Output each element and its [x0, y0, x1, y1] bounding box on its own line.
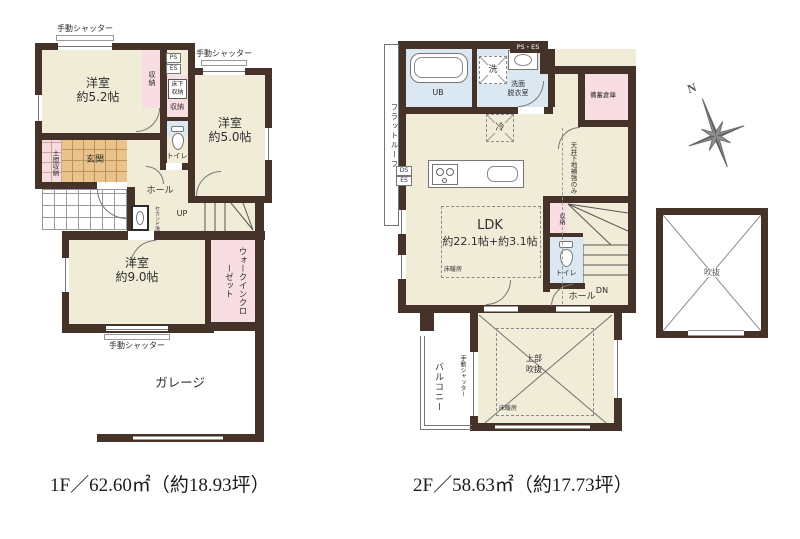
- sink-icon: [487, 166, 518, 182]
- burner: [446, 168, 454, 176]
- opening: [484, 306, 518, 312]
- door-opening: [518, 107, 544, 114]
- wall: [35, 182, 97, 189]
- wall: [205, 240, 211, 322]
- flat-roof-label: フラットルーフ: [386, 52, 398, 220]
- window: [265, 128, 272, 160]
- room-90-size: 約9.0帖: [100, 271, 174, 285]
- up-label: UP: [172, 209, 192, 218]
- bathtub-inner: [414, 57, 463, 78]
- fridge-box: 冷: [486, 114, 514, 142]
- void-label-2: 吹抜: [519, 365, 549, 374]
- ps-box: PS: [166, 53, 181, 63]
- ldk-size: 約22.1帖+約3.1帖: [424, 236, 556, 249]
- basin-icon: [508, 50, 538, 70]
- floor-heating-label: 床暖房: [444, 267, 474, 274]
- garage-gate-opening: [133, 436, 223, 440]
- hall-label-2f: ホール: [560, 292, 604, 302]
- ds-box: DS: [396, 166, 412, 176]
- shutter-box: [201, 60, 247, 66]
- second-basin-icon: [131, 205, 149, 231]
- door-opening: [166, 163, 182, 170]
- opening: [556, 306, 590, 312]
- wall: [543, 196, 628, 203]
- void-label-1: 上部: [519, 354, 549, 363]
- wall: [628, 66, 636, 312]
- ub-label: UB: [426, 88, 450, 97]
- window: [495, 425, 590, 429]
- garage-label: ガレージ: [146, 376, 214, 390]
- window: [58, 43, 112, 50]
- underfloor-storage-box: 床下 収納: [168, 79, 187, 99]
- room-90-name: 洋室: [100, 257, 174, 271]
- caption-2f: 2F／58.63㎡（約17.73坪）: [413, 470, 633, 497]
- bathtub-icon: [410, 53, 468, 83]
- fridge-label: 冷: [487, 123, 513, 133]
- burner: [436, 168, 444, 176]
- toilet-label-2f: トイレ: [549, 269, 583, 277]
- underfloor-label-1: 床下: [169, 82, 186, 89]
- closet-2f-label: 収納: [553, 205, 564, 233]
- doma-label: 土間収納: [46, 144, 58, 182]
- window: [62, 258, 69, 292]
- wall: [166, 117, 188, 121]
- wall: [205, 322, 264, 331]
- toilet-icon: [170, 126, 185, 151]
- room-52-name: 洋室: [66, 77, 130, 91]
- wall: [472, 49, 477, 107]
- balcony-label: バルコニー: [429, 350, 443, 424]
- burner: [442, 178, 447, 183]
- room-50-name: 洋室: [196, 117, 264, 131]
- ceiling-note-label: 天井下地補強のみ: [564, 126, 576, 210]
- ldk-name: LDK: [449, 219, 531, 234]
- hall-label-1f: ホール: [139, 186, 181, 196]
- stove-icon: [432, 164, 458, 185]
- shutter-label: 手動シャッター: [104, 341, 170, 350]
- ps-es-badge: PS・ES: [510, 42, 546, 53]
- toilet-icon: [558, 241, 574, 268]
- wall: [420, 313, 434, 331]
- closet-strip-label: 収納: [146, 62, 156, 96]
- window: [203, 68, 245, 75]
- window: [398, 255, 406, 279]
- basin-bowl: [514, 54, 532, 66]
- toilet-label-1f: トイレ: [162, 152, 192, 160]
- genkan-label: 玄関: [81, 155, 109, 165]
- wic-label: ウォークインクローゼット: [216, 246, 248, 316]
- window: [35, 95, 42, 121]
- senmen-label-2: 脱衣室: [492, 89, 544, 97]
- closet-label: 収納: [164, 103, 190, 111]
- floor-heating-label-2: 床暖房: [499, 406, 529, 413]
- basin-bowl: [136, 211, 144, 225]
- shutter-label: 手動シャッター: [192, 49, 256, 58]
- underfloor-label-2: 収納: [169, 90, 186, 97]
- second-basin-label: セカンド洗面: [150, 204, 159, 238]
- void-square-label: 吹抜: [690, 268, 734, 277]
- stairs-1f: [195, 203, 255, 231]
- shutter-box: [104, 334, 170, 340]
- window: [398, 210, 406, 234]
- shutter-label-2f: 手動シャッター: [455, 344, 465, 408]
- caption-1f: 1F／62.60㎡（約18.93坪）: [50, 470, 270, 497]
- toilet-tank: [171, 126, 184, 132]
- shutter-label: 手動シャッター: [48, 24, 122, 33]
- room-52-size: 約5.2帖: [66, 91, 130, 105]
- wall: [62, 231, 265, 240]
- void-square: 吹抜: [656, 208, 768, 338]
- compass-icon: [676, 84, 752, 180]
- window: [106, 326, 168, 331]
- floorplan-page: { "f1": { "caption": "1F／62.60㎡（約18.93坪）…: [0, 0, 800, 539]
- wall: [35, 133, 160, 140]
- wall: [548, 49, 555, 107]
- shutter-box: [56, 35, 114, 41]
- es-box: ES: [396, 176, 412, 186]
- void-square-opening: [688, 330, 744, 336]
- es-box: ES: [166, 64, 181, 74]
- toilet-bowl: [172, 133, 184, 150]
- floor1-plan: PS ES 床下 収納 手動シャッター 手動シャッター 手動シャッター 洋室 約…: [0, 0, 320, 539]
- wall: [188, 196, 265, 203]
- bichiku-label: 備蓄倉庫: [580, 92, 626, 99]
- room-50-size: 約5.0帖: [196, 131, 264, 145]
- wall: [578, 120, 636, 127]
- washer-label: 洗: [480, 65, 506, 75]
- senmen-label-1: 洗面: [492, 80, 544, 88]
- window: [614, 340, 622, 398]
